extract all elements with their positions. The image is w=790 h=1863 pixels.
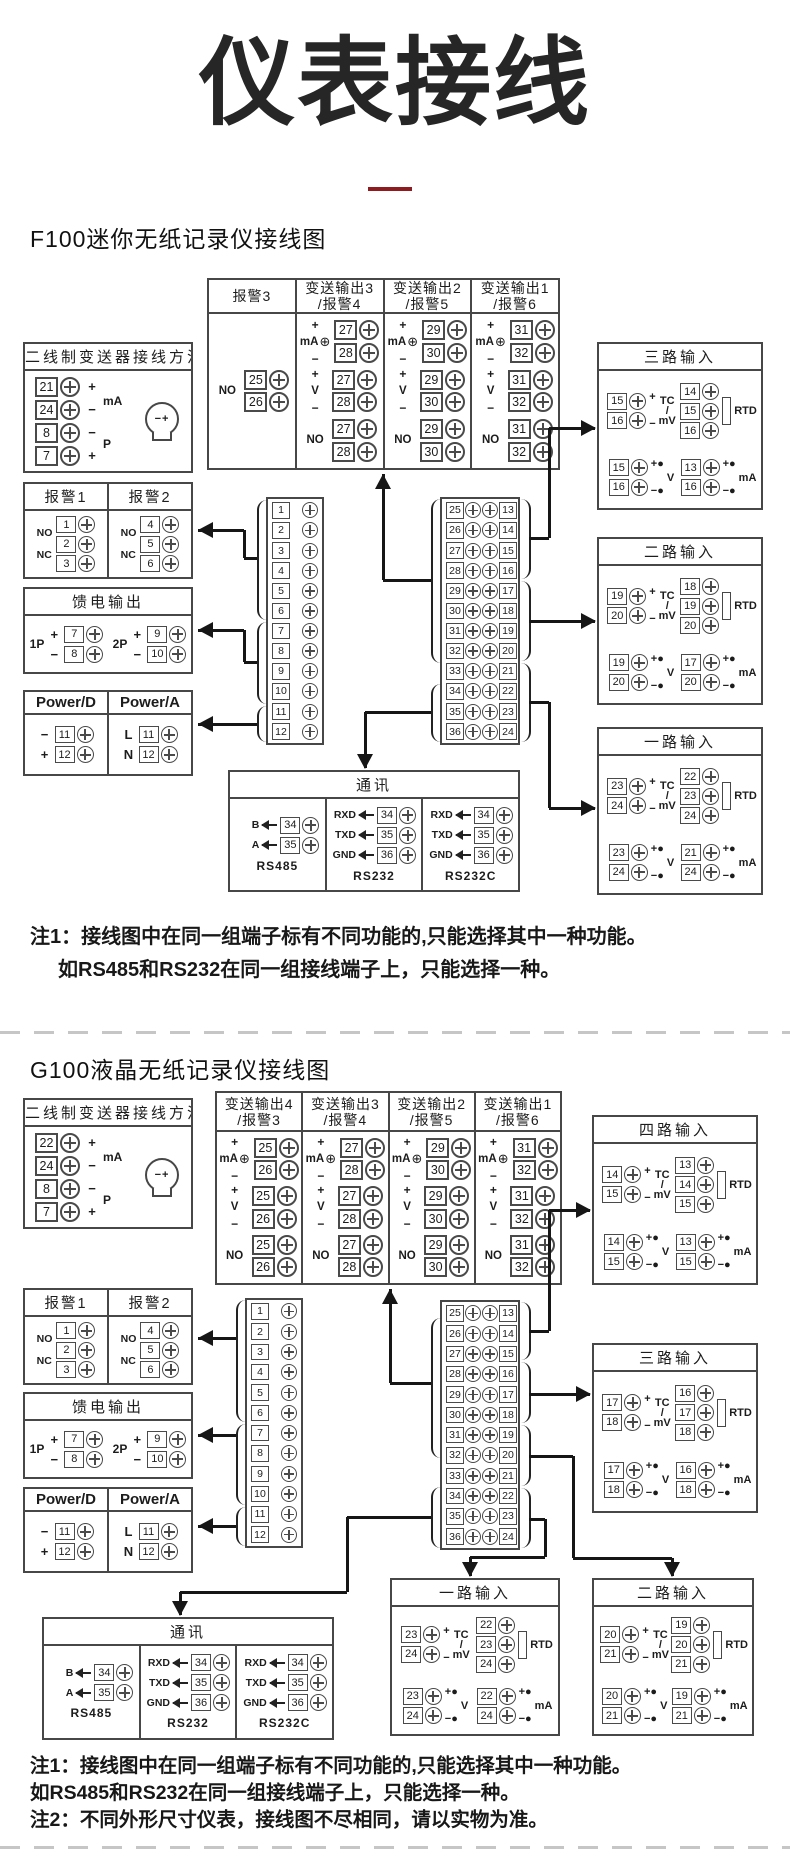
- terminal: 7: [64, 1431, 103, 1448]
- terminal: 5: [140, 1342, 179, 1359]
- terminal: 24: [476, 1656, 515, 1673]
- screw-icon: [535, 1186, 555, 1206]
- terminal-number: 23: [680, 788, 700, 805]
- minus-dot: −●: [651, 872, 664, 881]
- no-label: NO: [121, 1333, 137, 1345]
- screw-icon: [622, 1646, 639, 1663]
- terminal-number: 31: [508, 419, 531, 439]
- screw-icon: [86, 626, 103, 643]
- output-type-label-row: V: [490, 1201, 498, 1213]
- arrowhead-down-icon: [172, 1601, 188, 1616]
- mv-label: mV: [652, 1650, 669, 1660]
- connector-wire: [244, 557, 257, 560]
- terminal-number: 9: [251, 1466, 269, 1483]
- alarm-column: NONC456: [109, 1317, 191, 1383]
- terminal-number: 20: [602, 1688, 622, 1705]
- comm-rows: RXD34TXD35GND36: [332, 807, 416, 864]
- terminal-number: 22: [476, 1617, 496, 1634]
- polarity-label: −: [48, 647, 60, 662]
- left-arrow-icon: [270, 1682, 285, 1684]
- screw-icon: [482, 1407, 498, 1423]
- terminal-number: 35: [377, 827, 397, 844]
- ma-signs: +●−●: [718, 1462, 731, 1498]
- screw-icon: [302, 817, 319, 834]
- terminal: 32: [510, 343, 555, 363]
- left-arrow-icon: [173, 1662, 188, 1664]
- terminal-number: 5: [140, 536, 160, 553]
- screw-icon: [631, 479, 648, 496]
- screw-icon: [213, 1654, 230, 1671]
- terminal-number: 19: [671, 1617, 691, 1634]
- v-label: V: [461, 1701, 468, 1711]
- terminal: 21: [681, 844, 720, 861]
- output-title: 变送输出1: [472, 280, 558, 296]
- rtd-terminals: 222324: [476, 1617, 515, 1673]
- terminal-number: 32: [513, 1160, 536, 1180]
- terminal: 20: [607, 607, 646, 624]
- mv-label: mV: [453, 1650, 470, 1660]
- terminal-number: 24: [607, 797, 627, 814]
- terminal: 27: [332, 370, 377, 390]
- terminal-number: 18: [499, 1407, 517, 1424]
- comm-row: RXD34: [243, 1654, 327, 1671]
- v-signs: +●−●: [651, 655, 664, 691]
- f100-comm-box-body: B34A35RS485RXD34TXD35GND36RS232RXD34TXD3…: [230, 799, 518, 890]
- terminal-number: 16: [607, 412, 627, 429]
- terminal-number: 28: [340, 1160, 363, 1180]
- terminal-number: 6: [140, 555, 160, 572]
- terminal: 34: [280, 817, 319, 834]
- minus-label: −: [644, 1422, 650, 1431]
- output-group-V: +V−2728: [302, 369, 377, 413]
- terminal-number: 7: [64, 1431, 84, 1448]
- comm-pin-label: RXD: [332, 809, 356, 821]
- screw-icon: [482, 704, 498, 720]
- terminal: 17: [602, 1394, 641, 1411]
- terminal: 35: [191, 1674, 230, 1691]
- terminal: 23: [403, 1688, 442, 1705]
- rtd-group: 222324RTD: [680, 768, 757, 824]
- terminal-number: 28: [334, 343, 357, 363]
- screw-icon: [363, 1235, 383, 1255]
- terminal-number: 28: [332, 442, 355, 462]
- strip-terminal-row: 3018: [446, 603, 514, 620]
- screw-icon: [281, 1425, 297, 1441]
- screw-icon: [310, 1654, 327, 1671]
- terminal-number: 15: [607, 393, 627, 410]
- polarity-label: +: [39, 1544, 51, 1559]
- arrowhead-left-icon: [198, 1518, 213, 1534]
- strip-terminal-row: 3119: [446, 1427, 514, 1444]
- polarity-label: −: [48, 1452, 60, 1467]
- power-terminal-row: −11: [39, 726, 94, 743]
- feed-phase-label: 2P: [113, 637, 128, 651]
- terminal: 12: [55, 1543, 94, 1560]
- minus-dot: −●: [651, 487, 664, 496]
- screw-icon: [465, 1447, 481, 1463]
- minus-label: −: [490, 1171, 497, 1181]
- comm-standard-label: RS485: [70, 1706, 112, 1720]
- connector-wire: [544, 1519, 547, 1557]
- current-source-icon: ⊕: [407, 337, 418, 347]
- screw-icon: [277, 1235, 297, 1255]
- terminal: 14: [675, 1176, 714, 1193]
- screw-icon: [399, 847, 416, 864]
- terminal-number: 7: [272, 623, 290, 640]
- screw-icon: [357, 442, 377, 462]
- feed-phase-label: 1P: [30, 637, 45, 651]
- screw-icon: [697, 1424, 714, 1441]
- screw-icon: [465, 643, 481, 659]
- terminal-number: 16: [680, 422, 700, 439]
- terminal-number: 14: [675, 1176, 695, 1193]
- terminal-number: 31: [508, 370, 531, 390]
- terminal-number: 4: [140, 1322, 160, 1339]
- no-label: NO: [399, 1250, 416, 1262]
- output-group-V: +V−2930: [394, 1185, 469, 1229]
- screw-icon: [465, 704, 481, 720]
- terminal: 11: [139, 1523, 178, 1540]
- terminal-number: 35: [191, 1674, 211, 1691]
- minus-dot: −●: [651, 682, 664, 691]
- screw-icon: [60, 423, 80, 443]
- terminal: 12: [139, 1543, 178, 1560]
- terminal-number: 21: [681, 844, 701, 861]
- screw-icon: [499, 1707, 516, 1724]
- plus-label: +: [443, 1627, 449, 1636]
- terminal-number: 17: [499, 583, 517, 600]
- terminal-number: 7: [64, 626, 84, 643]
- type-label: V: [311, 385, 319, 397]
- strip-terminal-row: 3624: [446, 1528, 514, 1545]
- terminal: 14: [604, 1234, 643, 1251]
- screw-icon: [277, 1209, 297, 1229]
- title-underline-decoration: [368, 187, 412, 191]
- terminal-number: 18: [499, 603, 517, 620]
- tc-mv-label: TC/mV: [659, 591, 676, 621]
- strip-terminal-row: 2816: [446, 1366, 514, 1383]
- v-group: 2324+●−●V: [603, 844, 680, 881]
- output-group-mA: +mA⊕−2930: [392, 1137, 471, 1181]
- terminal: 1: [56, 1322, 95, 1339]
- terminal: 24: [35, 400, 80, 420]
- comm-column-RS485: B34A35RS485: [44, 1646, 141, 1738]
- terminal: 31: [508, 419, 553, 439]
- terminal: 14: [602, 1166, 641, 1183]
- strip-terminal-row: 7: [251, 1425, 297, 1442]
- terminal: 26: [252, 1209, 297, 1229]
- tc-mv-group: 1516+−TC/mV: [603, 383, 680, 439]
- terminal: 15: [602, 1186, 641, 1203]
- alarm-terminals: 456: [140, 1322, 179, 1378]
- g100-input-box-1ch-body: 2324+−TC/mV222324RTD2324+●−●V2224+●−●mA: [392, 1607, 558, 1734]
- terminal-number: 29: [426, 1138, 449, 1158]
- g100-output-table: 变送输出4/报警3变送输出3/报警4变送输出2/报警5变送输出1/报警6+mA⊕…: [215, 1091, 562, 1285]
- connector-wire: [390, 1382, 431, 1385]
- screw-icon: [169, 1431, 186, 1448]
- plus-dot: +●: [651, 845, 664, 854]
- terminal-number: 21: [602, 1707, 622, 1724]
- terminal: 8: [64, 646, 103, 663]
- screw-icon: [162, 1322, 179, 1339]
- terminal-number: 34: [474, 807, 494, 824]
- output-title: 变送输出2: [385, 280, 471, 296]
- terminal-number: 16: [499, 562, 517, 579]
- terminal-number: 27: [332, 370, 355, 390]
- terminal-number: 25: [244, 370, 267, 390]
- terminal-number: 18: [602, 1414, 622, 1431]
- terminal-number: 30: [420, 392, 443, 412]
- terminal: 26: [254, 1160, 299, 1180]
- v-signs: +●−●: [445, 1688, 458, 1724]
- terminal-number: 29: [424, 1235, 447, 1255]
- feed-terminals: +9−10: [131, 1431, 186, 1468]
- comm-pin-label: GND: [429, 849, 453, 861]
- terminal-number: 25: [254, 1138, 277, 1158]
- terminal: 28: [332, 392, 377, 412]
- terminal-number: 20: [600, 1626, 620, 1643]
- terminal-number: 16: [609, 479, 629, 496]
- tc-mv-label: TC/mV: [659, 396, 676, 426]
- terminal-number: 35: [280, 837, 300, 854]
- current-source-icon: ⊕: [325, 1154, 336, 1164]
- connector-wire: [572, 1456, 575, 1558]
- screw-icon: [482, 1326, 498, 1342]
- terminal-number: 35: [446, 703, 464, 720]
- comm-pin-label: TXD: [332, 829, 356, 841]
- terminal: 23: [609, 844, 648, 861]
- output-terminals: 2526: [254, 1138, 299, 1181]
- minus-dot: −●: [714, 1715, 727, 1724]
- terminal-number: 23: [403, 1688, 423, 1705]
- terminal-number: 10: [147, 1451, 167, 1468]
- terminal: 30: [424, 1209, 469, 1229]
- minus-label: −: [317, 1219, 324, 1229]
- screw-icon: [482, 502, 498, 518]
- plus-label: +: [399, 369, 406, 379]
- screw-icon: [447, 320, 467, 340]
- f100-output-table-body: NO2526+mA⊕−2728+V−2728NO2728+mA⊕−2930+V−…: [209, 314, 558, 468]
- g100-output-table-header: 变送输出4/报警3变送输出3/报警4变送输出2/报警5变送输出1/报警6: [217, 1093, 560, 1132]
- screw-icon: [60, 377, 80, 397]
- terminal-number: 24: [35, 1156, 58, 1176]
- current-source-icon: ⊕: [498, 1154, 509, 1164]
- plus-dot: +●: [718, 1234, 731, 1243]
- screw-icon: [302, 704, 318, 720]
- ma-label: mA: [734, 1247, 752, 1257]
- v-signs: +●−●: [651, 845, 664, 881]
- current-source-icon: ⊕: [319, 337, 330, 347]
- terminal-number: 15: [499, 542, 517, 559]
- terminal: 23: [607, 778, 646, 795]
- screw-icon: [482, 724, 498, 740]
- terminal: 23: [476, 1636, 515, 1653]
- terminal: 31: [508, 370, 553, 390]
- comm-column-RS232: RXD34TXD35GND36RS232: [141, 1646, 238, 1738]
- comm-standard-label: RS232C: [445, 869, 496, 883]
- g100-input-box-4ch: 四路输入1415+−TC/mV131415RTD1415+●−●V1315+●−…: [592, 1115, 758, 1285]
- left-arrow-icon: [359, 814, 374, 816]
- terminal-number: 28: [446, 1366, 464, 1383]
- group-bracket: [236, 1507, 246, 1546]
- output-type-label-row: mA⊕: [392, 1153, 422, 1165]
- no-label: NO: [219, 385, 236, 397]
- plus-dot: +●: [445, 1688, 458, 1697]
- terminal: 34: [377, 807, 416, 824]
- screw-icon: [482, 1508, 498, 1524]
- f100-note-line-1: 注1：接线图中在同一组端子标有不同功能的,只能选择其中一种功能。: [30, 921, 770, 954]
- strip-terminal-row: 2614: [446, 1325, 514, 1342]
- terminal-number: 17: [675, 1404, 695, 1421]
- screw-icon: [162, 536, 179, 553]
- output-column: +mA⊕−2930+V−2930NO2930: [385, 314, 473, 468]
- screw-icon: [465, 1366, 481, 1382]
- terminal-number: 13: [675, 1157, 695, 1174]
- f100-feed-box-title: 馈电输出: [25, 589, 191, 616]
- feed-terminal-row: +7: [48, 626, 103, 643]
- ma-label: mA: [730, 1701, 748, 1711]
- output-type-label-row: V: [487, 385, 495, 397]
- terminal-number: 26: [244, 392, 267, 412]
- screw-icon: [624, 1414, 641, 1431]
- terminal: 17: [604, 1462, 643, 1479]
- ma-group: 2224+●−●mA: [475, 1688, 554, 1725]
- terminal-number: 35: [474, 827, 494, 844]
- screw-icon: [213, 1674, 230, 1691]
- f100-output-table-header: 报警3变送输出3/报警4变送输出2/报警5变送输出1/报警6: [209, 280, 558, 314]
- mv-label: mV: [654, 1418, 671, 1428]
- terminal: 29: [424, 1235, 469, 1255]
- section-divider-dashed: [0, 1031, 790, 1034]
- screw-icon: [425, 1707, 442, 1724]
- v-terminals: 1718: [604, 1462, 643, 1499]
- screw-icon: [302, 543, 318, 559]
- tc-terminals: 1920: [607, 588, 646, 625]
- screw-icon: [465, 663, 481, 679]
- plus-label: +: [642, 1627, 648, 1636]
- connector-wire: [470, 1556, 545, 1559]
- group-bracket: [257, 706, 267, 742]
- left-arrow-icon: [173, 1682, 188, 1684]
- power-column-title: Power/D: [25, 692, 109, 715]
- ma-signs: +●−●: [519, 1688, 532, 1724]
- terminal-number: 27: [338, 1186, 361, 1206]
- terminal-number: 12: [272, 723, 290, 740]
- comm-pin-label: A: [49, 1687, 73, 1699]
- screw-icon: [697, 1196, 714, 1213]
- terminal: 17: [675, 1404, 714, 1421]
- terminal: 6: [140, 555, 179, 572]
- f100-input-box-1ch: 一路输入2324+−TC/mV222324RTD2324+●−●V2124+●−…: [597, 727, 763, 895]
- type-label: V: [317, 1201, 325, 1213]
- screw-icon: [449, 1235, 469, 1255]
- output-subtitle: /报警5: [385, 296, 471, 312]
- v-label: V: [662, 1247, 669, 1257]
- tc-signs: +−: [644, 1167, 650, 1203]
- connector-wire: [529, 701, 549, 704]
- strip-terminal-row: 11: [251, 1506, 297, 1523]
- rtd-group: 222324RTD: [475, 1617, 554, 1673]
- terminal-number: 5: [272, 583, 290, 600]
- output-type-label-row: V: [311, 385, 319, 397]
- screw-icon: [465, 522, 481, 538]
- terminal-number: 3: [56, 555, 76, 572]
- terminal-number: 34: [377, 807, 397, 824]
- ma-signs: +●−●: [723, 655, 736, 691]
- strip-terminal-row: 8: [272, 643, 318, 660]
- output-terminals: 2526: [252, 1186, 297, 1229]
- screw-icon: [445, 419, 465, 439]
- minus-label: −: [649, 615, 655, 624]
- screw-icon: [77, 1543, 94, 1560]
- contact-labels: NONC: [121, 1328, 137, 1371]
- terminal: 32: [513, 1160, 558, 1180]
- terminal-number: 12: [139, 1543, 159, 1560]
- g100-feed-box-title: 馈电输出: [25, 1394, 191, 1421]
- screw-icon: [698, 1462, 715, 1479]
- terminal-number: 6: [251, 1405, 269, 1422]
- output-type-label-row: V: [403, 1201, 411, 1213]
- strip-terminal-row: 11: [272, 703, 318, 720]
- output-terminals: 2930: [424, 1235, 469, 1278]
- output-column: +mA⊕−2728+V−2728NO2728: [303, 1132, 389, 1283]
- terminal: 13: [675, 1157, 714, 1174]
- terminal: 35: [288, 1674, 327, 1691]
- screw-icon: [482, 1346, 498, 1362]
- terminal: 19: [680, 598, 719, 615]
- comm-pin-label: B: [49, 1667, 73, 1679]
- plus-dot: +●: [718, 1462, 731, 1471]
- power-terminal-row: N12: [123, 746, 178, 763]
- screw-icon: [482, 683, 498, 699]
- terminal-number: 30: [420, 442, 443, 462]
- strip-terminal-row: 2513: [446, 1305, 514, 1322]
- terminal-number: 24: [401, 1646, 421, 1663]
- terminal: 16: [675, 1385, 714, 1402]
- screw-icon: [449, 1186, 469, 1206]
- comm-column-RS485: B34A35RS485: [230, 799, 327, 890]
- terminal-number: 17: [681, 654, 701, 671]
- screw-icon: [482, 643, 498, 659]
- polarity-label: −: [86, 1158, 98, 1173]
- g100-notes: 注1：接线图中在同一组端子标有不同功能的,只能选择其中一种功能。 如RS485和…: [30, 1753, 780, 1834]
- output-group-signs: +mA⊕−: [219, 1137, 249, 1181]
- minus-dot: −●: [519, 1715, 532, 1724]
- screw-icon: [702, 403, 719, 420]
- screw-icon: [465, 623, 481, 639]
- g100-input-box-4ch-body: 1415+−TC/mV131415RTD1415+●−●V1315+●−●mA: [594, 1144, 756, 1283]
- terminal-number: 36: [446, 723, 464, 740]
- screw-icon: [169, 646, 186, 663]
- terminal: 24: [35, 1156, 80, 1176]
- screw-icon: [445, 442, 465, 462]
- connector-wire: [529, 537, 549, 540]
- terminal: 19: [671, 1617, 710, 1634]
- minus-label: −: [231, 1171, 238, 1181]
- screw-icon: [533, 370, 553, 390]
- terminal-number: 32: [510, 1209, 533, 1229]
- left-arrow-icon: [359, 854, 374, 856]
- terminal-number: 20: [499, 1447, 517, 1464]
- output-group-mA: +mA⊕−3132: [475, 320, 554, 364]
- terminal-number: 32: [508, 442, 531, 462]
- terminal-number: 9: [272, 663, 290, 680]
- terminal-number: 8: [251, 1445, 269, 1462]
- terminal: 27: [334, 320, 379, 340]
- tc-mv-label: TC/mV: [659, 781, 676, 811]
- terminal-number: 13: [681, 459, 701, 476]
- strip-terminal-row: 3321: [446, 663, 514, 680]
